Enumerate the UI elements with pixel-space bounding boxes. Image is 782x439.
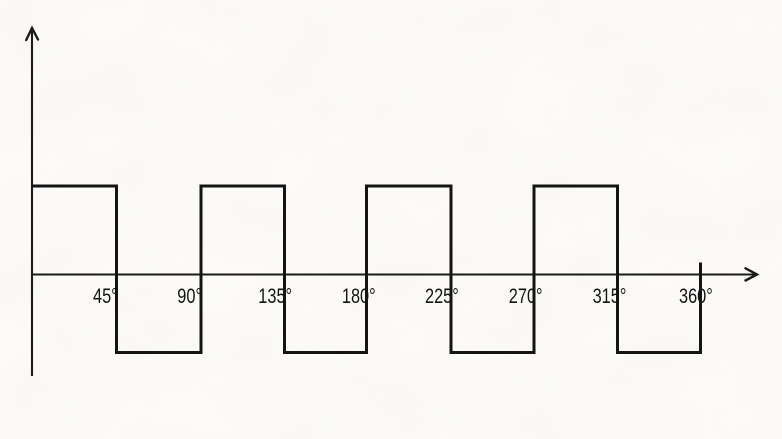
svg-text:180°: 180° <box>342 285 376 309</box>
svg-text:225°: 225° <box>425 285 459 309</box>
svg-text:135°: 135° <box>258 285 292 309</box>
svg-text:360°: 360° <box>679 285 713 309</box>
svg-text:45°: 45° <box>93 285 118 309</box>
svg-text:315°: 315° <box>593 285 627 309</box>
svg-text:270°: 270° <box>509 285 543 309</box>
svg-text:90°: 90° <box>177 285 202 309</box>
